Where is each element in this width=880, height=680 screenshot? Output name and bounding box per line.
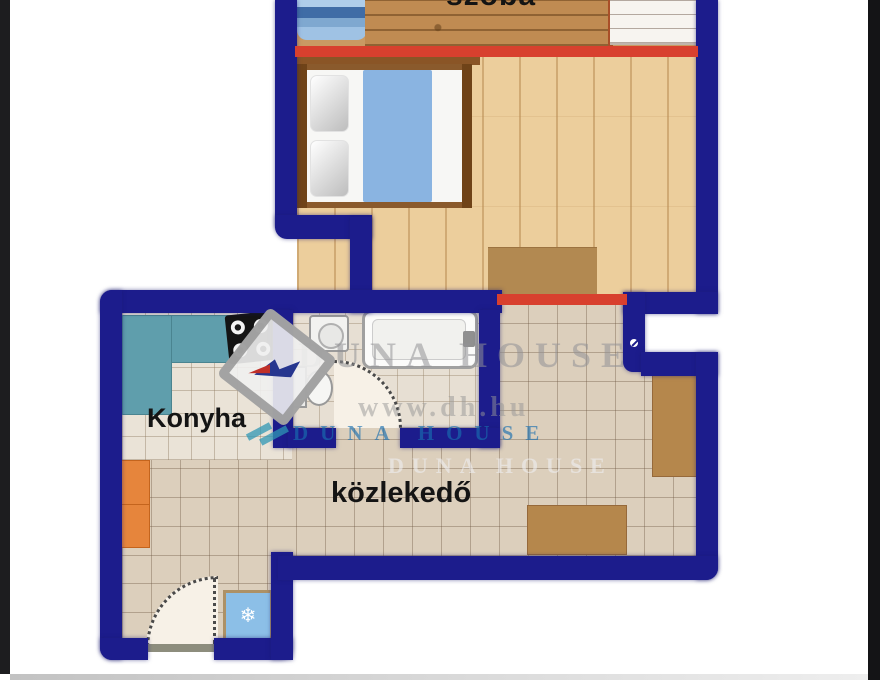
- wall-segment: [278, 556, 718, 580]
- wall-segment: [100, 290, 502, 313]
- bed-headboard: [297, 64, 307, 208]
- wall-segment: [400, 428, 500, 448]
- konyha-label: Konyha: [147, 403, 246, 434]
- bathtub: [362, 310, 478, 369]
- entry-door-leaf: [213, 578, 216, 644]
- shoe-cabinet: [120, 460, 150, 548]
- wall-notch-recess: [644, 310, 697, 355]
- letterbox-right-bar: [868, 0, 880, 680]
- wall-segment: [696, 0, 718, 314]
- szoba-label: szoba: [446, 0, 536, 13]
- shelf-radiator: [610, 0, 696, 45]
- bathtub-basin: [372, 319, 466, 360]
- floorplan-screenshot: szoba ❄: [0, 0, 880, 680]
- red-wall-middle: [497, 294, 627, 305]
- cabinet-divider: [121, 504, 149, 505]
- duvet-roll: [297, 0, 367, 40]
- letterbox-left-bar: [0, 0, 10, 674]
- symbol-slash: [631, 340, 638, 347]
- logo-sail-red: [248, 364, 270, 373]
- kozlekedo-label: közlekedő: [331, 477, 471, 510]
- wall-segment: [288, 428, 336, 448]
- red-wall-top: [295, 46, 698, 57]
- bed-pillow: [310, 140, 349, 197]
- snowflake-icon: ❄: [240, 606, 257, 626]
- bottom-shadow-strip: [10, 674, 868, 680]
- wall-fixture-symbol: [628, 337, 640, 349]
- entry-threshold: [147, 644, 217, 652]
- wall-segment: [696, 352, 718, 580]
- hall-table: [527, 505, 627, 555]
- wall-segment: [100, 638, 148, 660]
- wall-segment: [275, 0, 297, 228]
- sink-basin: [318, 323, 344, 349]
- hall-wardrobe: [652, 375, 698, 477]
- bedroom-dresser: [488, 247, 597, 298]
- bathtub-faucet: [463, 331, 475, 347]
- bed-pillow: [310, 75, 349, 132]
- bed-footboard: [462, 64, 472, 208]
- kitchen-counter: [122, 315, 172, 415]
- wall-segment: [100, 290, 122, 660]
- fridge: ❄: [223, 590, 273, 641]
- bed: [297, 64, 472, 208]
- bed-blanket: [363, 70, 432, 202]
- burner-icon: [230, 320, 245, 335]
